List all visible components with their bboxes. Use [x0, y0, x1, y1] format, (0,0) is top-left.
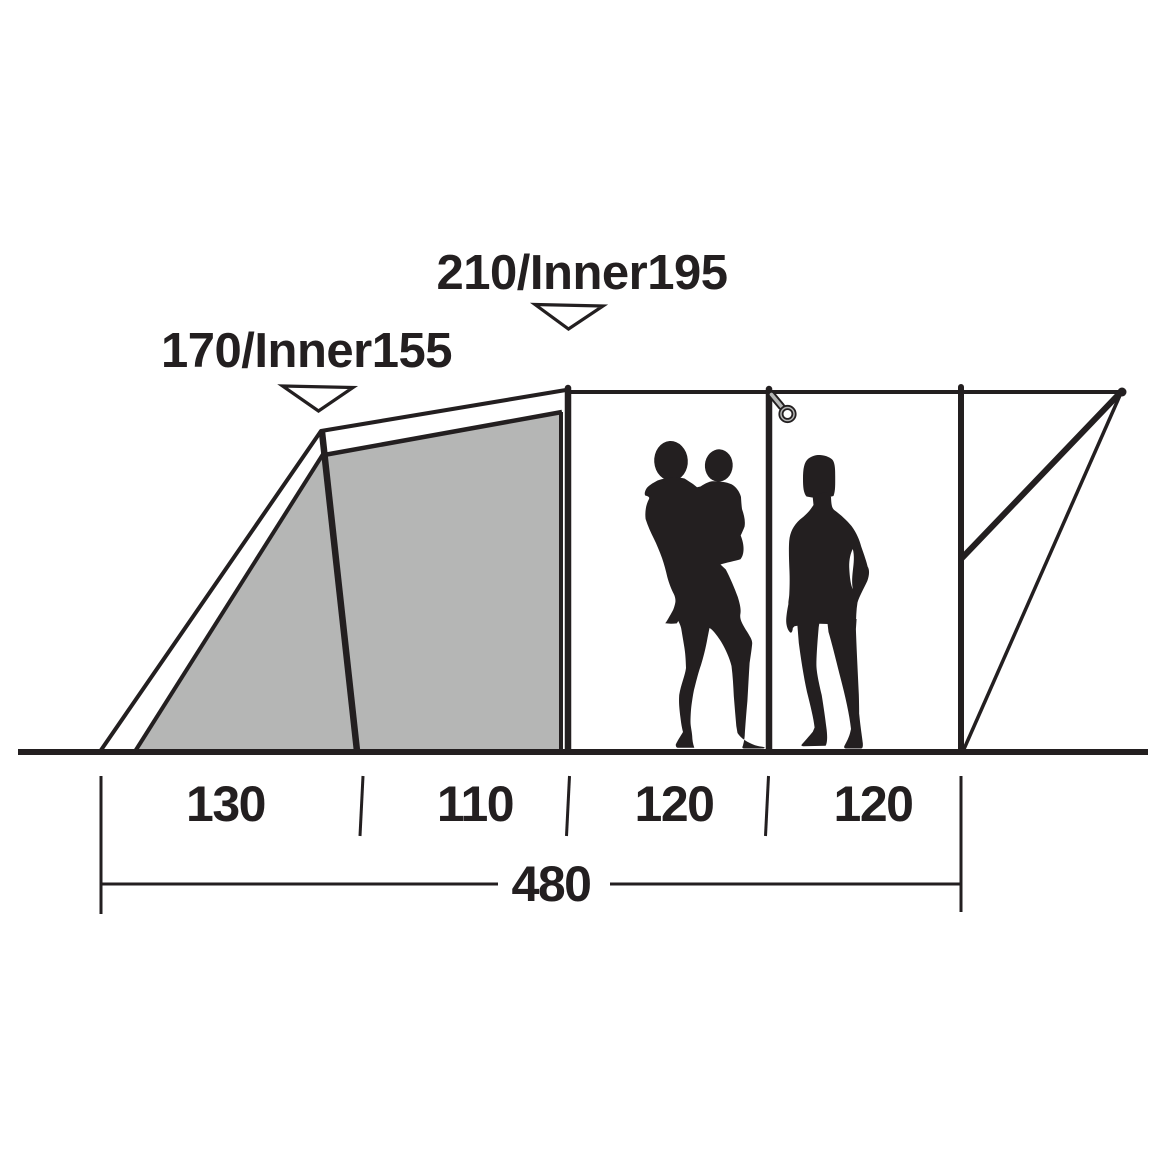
svg-text:130: 130 [186, 776, 265, 832]
svg-text:480: 480 [512, 856, 591, 912]
svg-text:120: 120 [834, 776, 913, 832]
svg-text:170/Inner155: 170/Inner155 [161, 324, 452, 378]
svg-text:110: 110 [437, 776, 513, 832]
svg-text:120: 120 [635, 776, 714, 832]
svg-text:210/Inner195: 210/Inner195 [437, 246, 728, 300]
